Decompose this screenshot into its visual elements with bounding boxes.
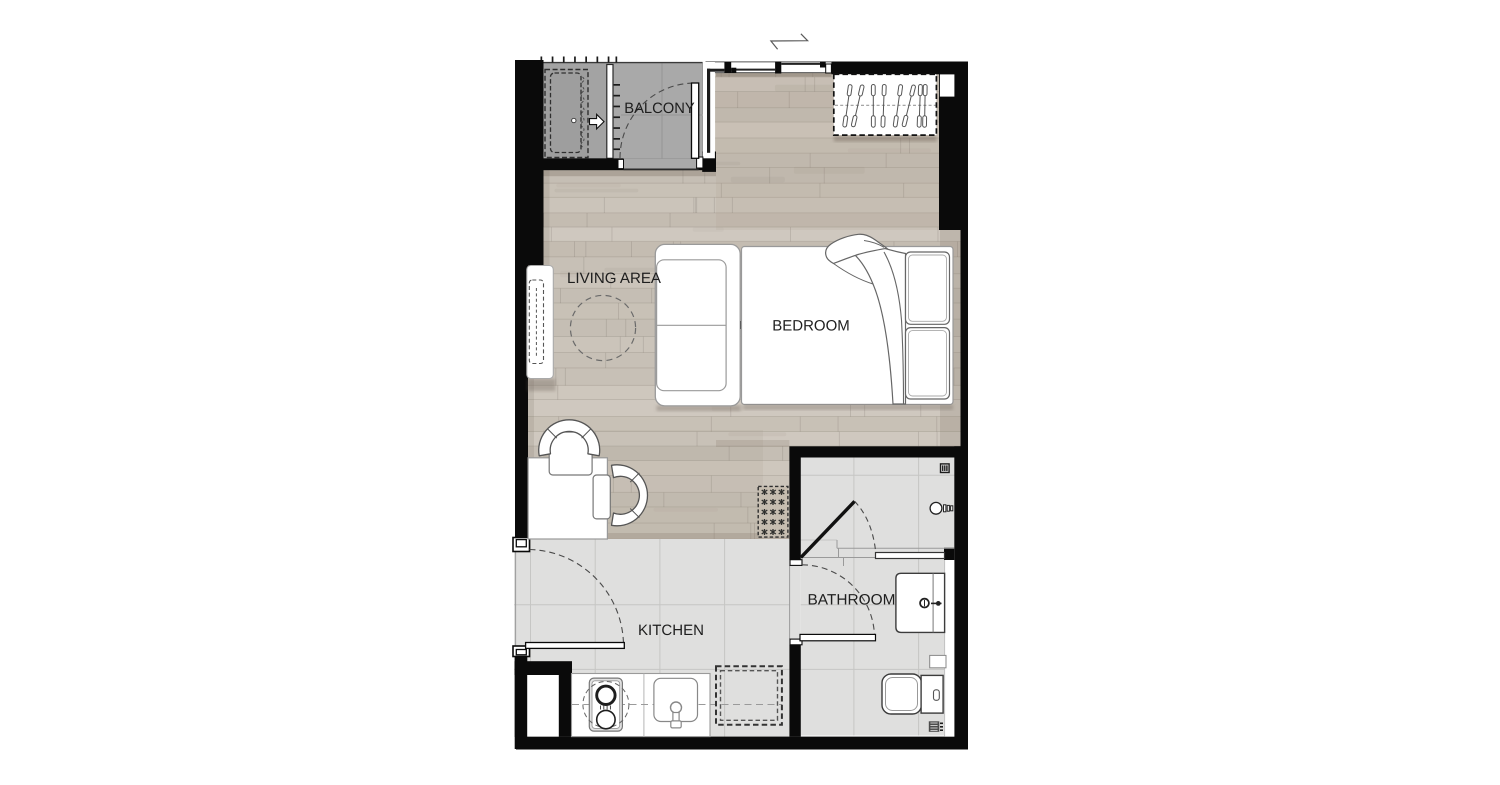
svg-text:KITCHEN: KITCHEN bbox=[638, 622, 704, 639]
svg-text:BATHROOM: BATHROOM bbox=[808, 591, 896, 608]
svg-text:BALCONY: BALCONY bbox=[624, 100, 695, 117]
svg-text:LIVING AREA: LIVING AREA bbox=[567, 270, 661, 287]
svg-text:BEDROOM: BEDROOM bbox=[772, 317, 850, 334]
